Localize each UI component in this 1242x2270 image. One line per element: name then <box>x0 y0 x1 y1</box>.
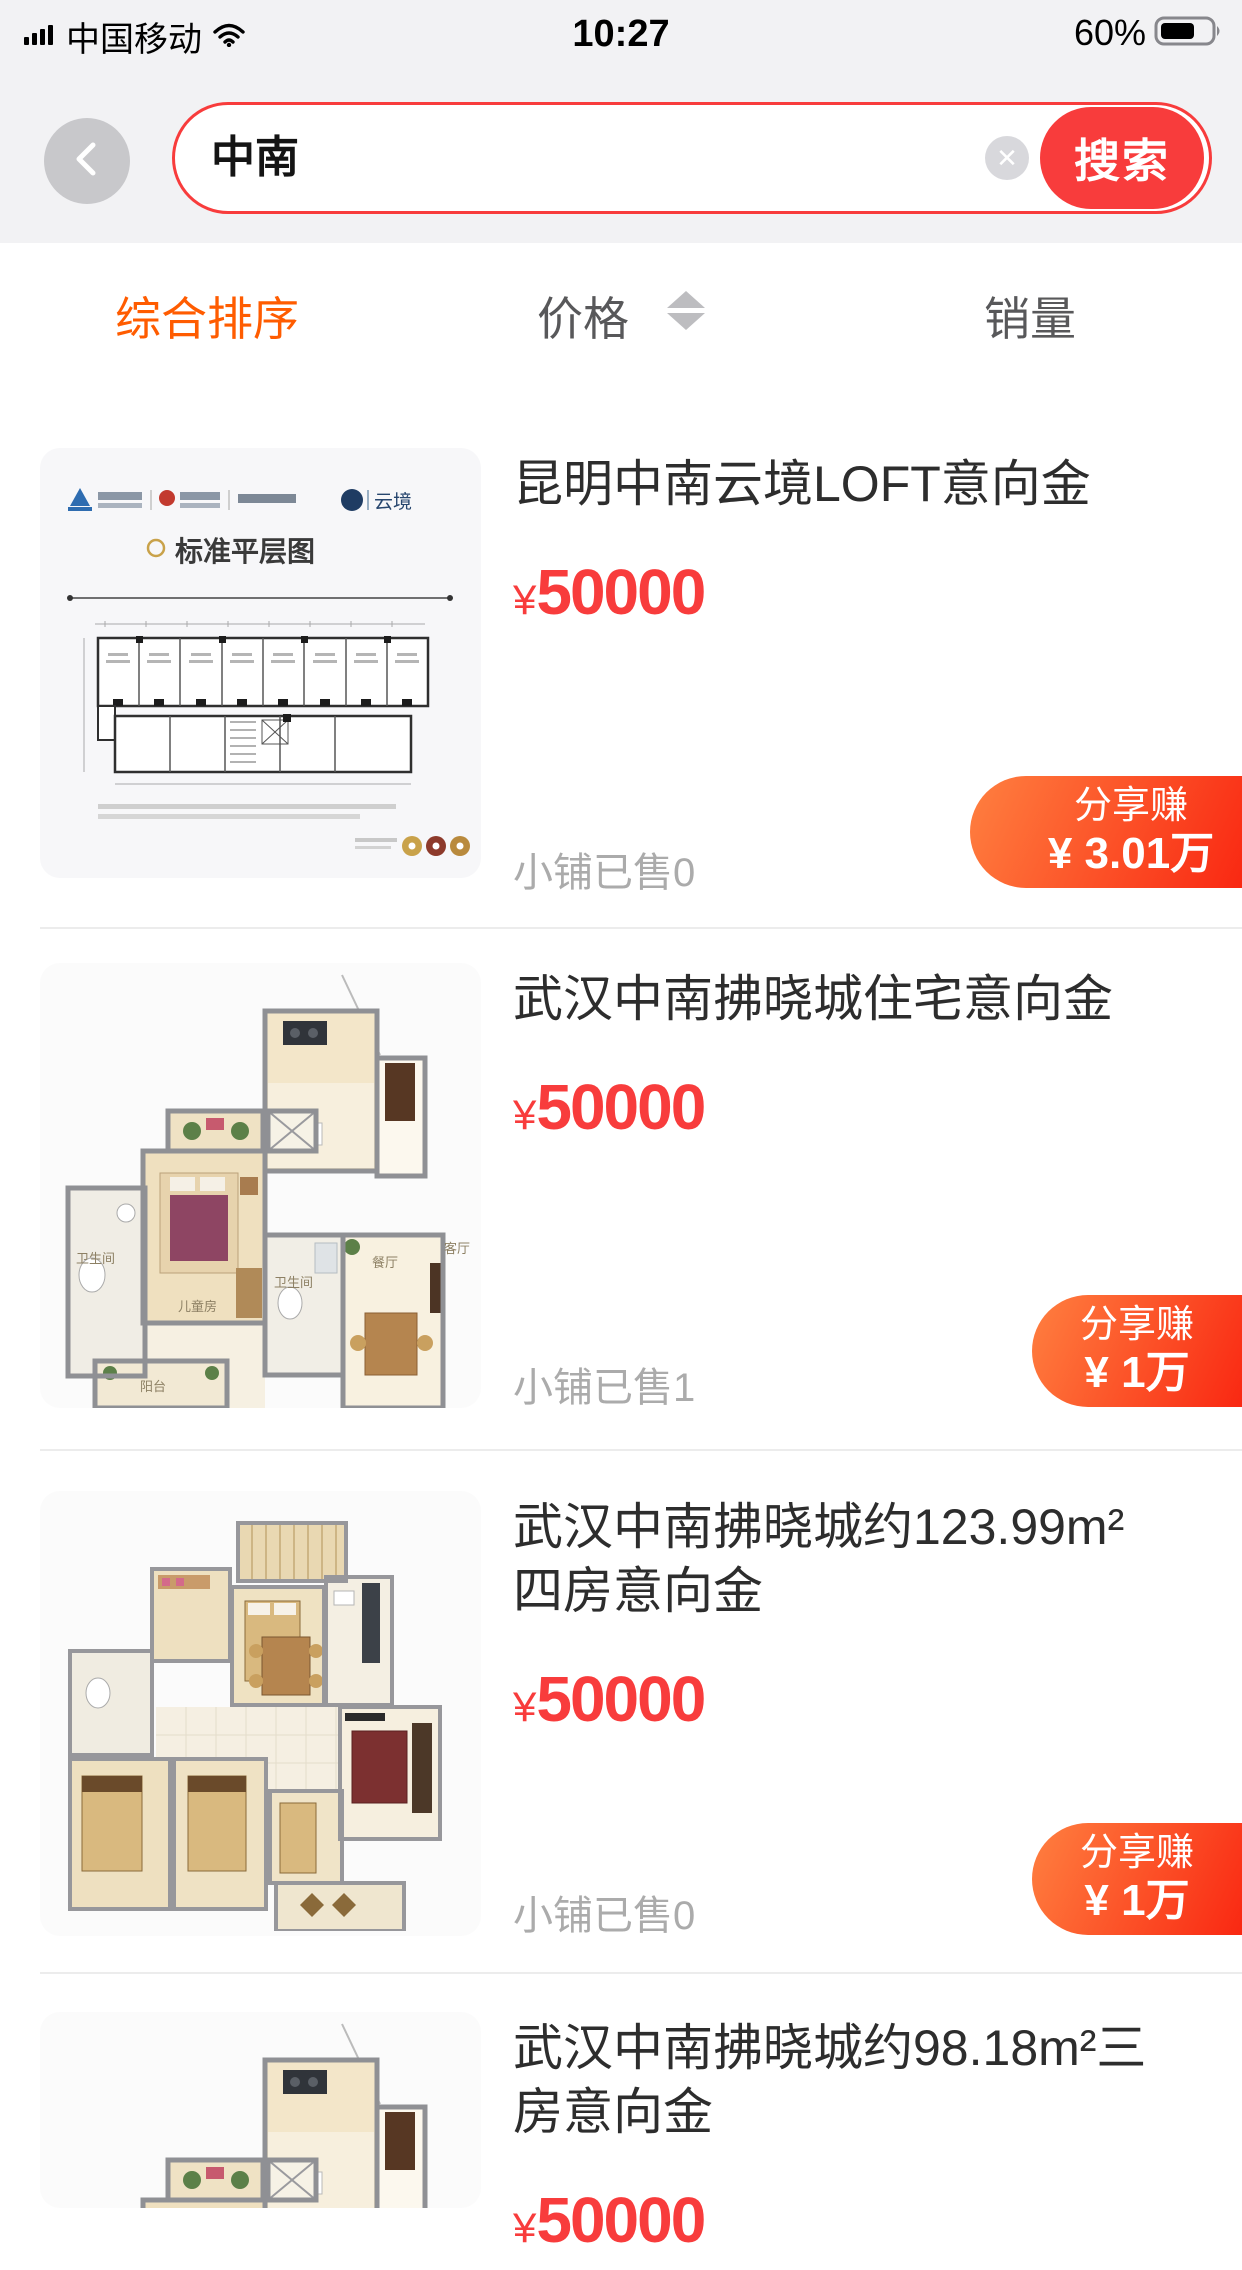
product-image-floorplan[interactable]: 卫生间 卫生间 儿童房 餐厅 <box>40 2012 481 2208</box>
product-item[interactable]: 武汉中南拂晓城约123.99m²四房意向金 ¥50000 小铺已售0 分享赚 ¥… <box>0 1491 1242 1972</box>
clock: 10:27 <box>0 13 1242 56</box>
sold-count: 小铺已售0 <box>513 840 695 898</box>
share-earn-badge[interactable]: 分享赚 ¥ 1万 <box>1032 1295 1242 1407</box>
search-button[interactable]: 搜索 <box>1040 107 1204 209</box>
svg-text:卫生间: 卫生间 <box>76 1251 115 1266</box>
search-bar[interactable]: 中南 ✕ 搜索 <box>172 102 1212 214</box>
svg-text:阳台: 阳台 <box>140 1379 166 1394</box>
list-divider <box>40 927 1242 929</box>
brand-logo: 云境 <box>341 489 412 513</box>
product-title[interactable]: 武汉中南拂晓城住宅意向金 <box>513 967 1173 1031</box>
product-image-floorplan[interactable]: 云境 标准平层图 <box>40 448 481 878</box>
tab-sales-sort[interactable]: 销量 <box>984 283 1076 349</box>
apartment-floorplan: 卫生间 卫生间 儿童房 餐厅 <box>68 2024 443 2208</box>
share-earn-badge[interactable]: 分享赚 ¥ 3.01万 <box>970 776 1242 888</box>
product-title[interactable]: 武汉中南拂晓城约98.18m²三房意向金 <box>513 2016 1173 2144</box>
share-earn-badge[interactable]: 分享赚 ¥ 1万 <box>1032 1823 1242 1935</box>
svg-text:餐厅: 餐厅 <box>372 1255 398 1270</box>
clear-search-icon[interactable]: ✕ <box>985 136 1029 180</box>
battery-icon <box>1154 14 1224 53</box>
product-price: ¥50000 <box>513 560 1173 642</box>
svg-text:卫生间: 卫生间 <box>274 1275 313 1290</box>
svg-text:云境: 云境 <box>374 491 412 513</box>
price-sort-arrows-icon[interactable] <box>667 291 707 330</box>
product-price: ¥50000 <box>513 2188 1173 2270</box>
tab-price-sort[interactable]: 价格 <box>537 283 629 349</box>
status-bar: 中国移动 10:27 60% <box>0 0 1242 60</box>
svg-text:客厅: 客厅 <box>444 1241 470 1256</box>
battery-percent: 60% <box>1074 12 1146 54</box>
list-divider <box>40 1449 1242 1451</box>
apartment-floorplan <box>70 1523 440 1931</box>
developer-logos <box>68 488 296 511</box>
product-item[interactable]: 卫生间 卫生间 儿童房 餐厅 武汉中南拂晓城约98.18m²三房意向金 ¥500… <box>0 2012 1242 2208</box>
chevron-left-icon <box>69 137 105 186</box>
product-image-floorplan[interactable] <box>40 1491 481 1936</box>
svg-text:儿童房: 儿童房 <box>178 1299 217 1314</box>
product-price: ¥50000 <box>513 1667 1173 1749</box>
sold-count: 小铺已售1 <box>513 1355 695 1413</box>
back-button[interactable] <box>44 118 130 204</box>
product-item[interactable]: 云境 标准平层图 <box>0 448 1242 927</box>
product-title[interactable]: 武汉中南拂晓城约123.99m²四房意向金 <box>513 1495 1173 1623</box>
product-title[interactable]: 昆明中南云境LOFT意向金 <box>513 452 1173 516</box>
floorplan-badges <box>355 836 470 856</box>
list-divider <box>40 1972 1242 1974</box>
floorplan-drawing <box>84 621 428 784</box>
apartment-floorplan: 卫生间 卫生间 儿童房 餐厅 客厅 阳台 <box>68 975 470 1408</box>
product-image-floorplan[interactable]: 卫生间 卫生间 儿童房 餐厅 客厅 阳台 <box>40 963 481 1408</box>
filter-bar: 综合排序 价格 销量 <box>0 243 1242 383</box>
search-input[interactable]: 中南 <box>211 105 299 211</box>
product-price: ¥50000 <box>513 1075 1173 1157</box>
tab-comprehensive-sort[interactable]: 综合排序 <box>115 283 299 349</box>
sold-count: 小铺已售0 <box>513 1883 695 1941</box>
floorplan-disclaimer <box>98 804 396 819</box>
product-item[interactable]: 卫生间 卫生间 儿童房 餐厅 客厅 阳台 武汉中南拂晓城住宅意向金 ¥50000… <box>0 963 1242 1449</box>
floorplan-heading: 标准平层图 <box>175 536 315 567</box>
search-header: 中国移动 10:27 60% <box>0 0 1242 243</box>
